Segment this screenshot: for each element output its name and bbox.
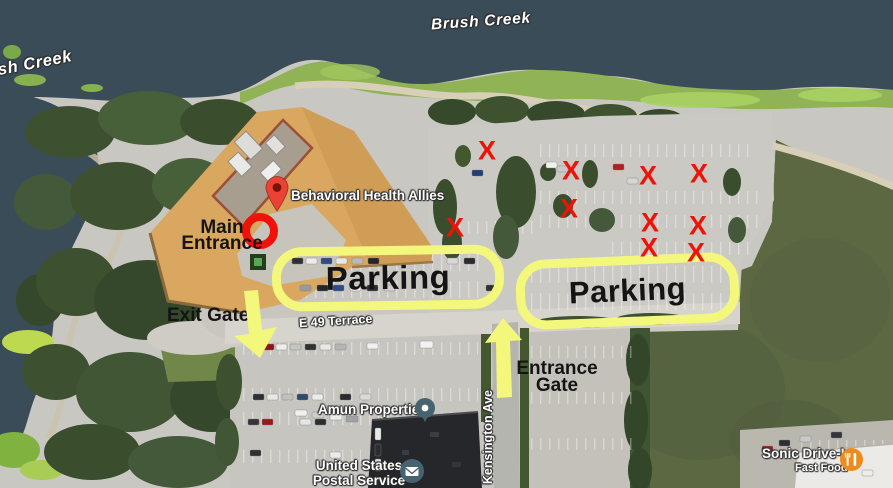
x-mark: X <box>640 235 658 262</box>
poi-label-amun-properties: Amun Properties <box>318 403 427 418</box>
x-mark: X <box>687 240 705 267</box>
exit-gate-label: Exit Gate <box>167 306 249 327</box>
x-mark: X <box>478 138 496 165</box>
parking-highlight-left: Parking <box>272 244 505 311</box>
poi-label-sonic-drive-in: Sonic Drive-In <box>762 447 853 462</box>
x-mark: X <box>690 161 708 188</box>
x-mark: X <box>639 163 657 190</box>
main-entrance-line2: Entrance <box>180 236 264 252</box>
parking-label-right: Parking <box>568 271 687 312</box>
entrance-gate-label: Entrance Gate <box>512 360 602 394</box>
entrance-gate-line2: Gate <box>512 377 602 394</box>
map-canvas[interactable]: Brush Creek Brush Creek Behavioral Healt… <box>0 0 893 488</box>
x-mark: X <box>689 213 707 240</box>
x-mark: X <box>562 158 580 185</box>
parking-label-left: Parking <box>325 258 450 298</box>
poi-label-usps: United States Postal Service <box>303 458 415 488</box>
parking-highlight-right: Parking <box>515 251 741 330</box>
usps-line2: Postal Service <box>313 473 405 488</box>
x-mark: X <box>446 215 464 242</box>
satellite-imagery <box>0 0 893 488</box>
main-entrance-label: Main Entrance <box>180 220 264 251</box>
usps-line1: United States <box>316 458 402 473</box>
poi-category-fast-food: Fast Food <box>795 462 848 474</box>
place-label-behavioral-health-allies: Behavioral Health Allies <box>291 189 444 204</box>
x-mark: X <box>560 196 578 223</box>
street-label-kensington-ave: Kensington Ave <box>482 390 496 484</box>
